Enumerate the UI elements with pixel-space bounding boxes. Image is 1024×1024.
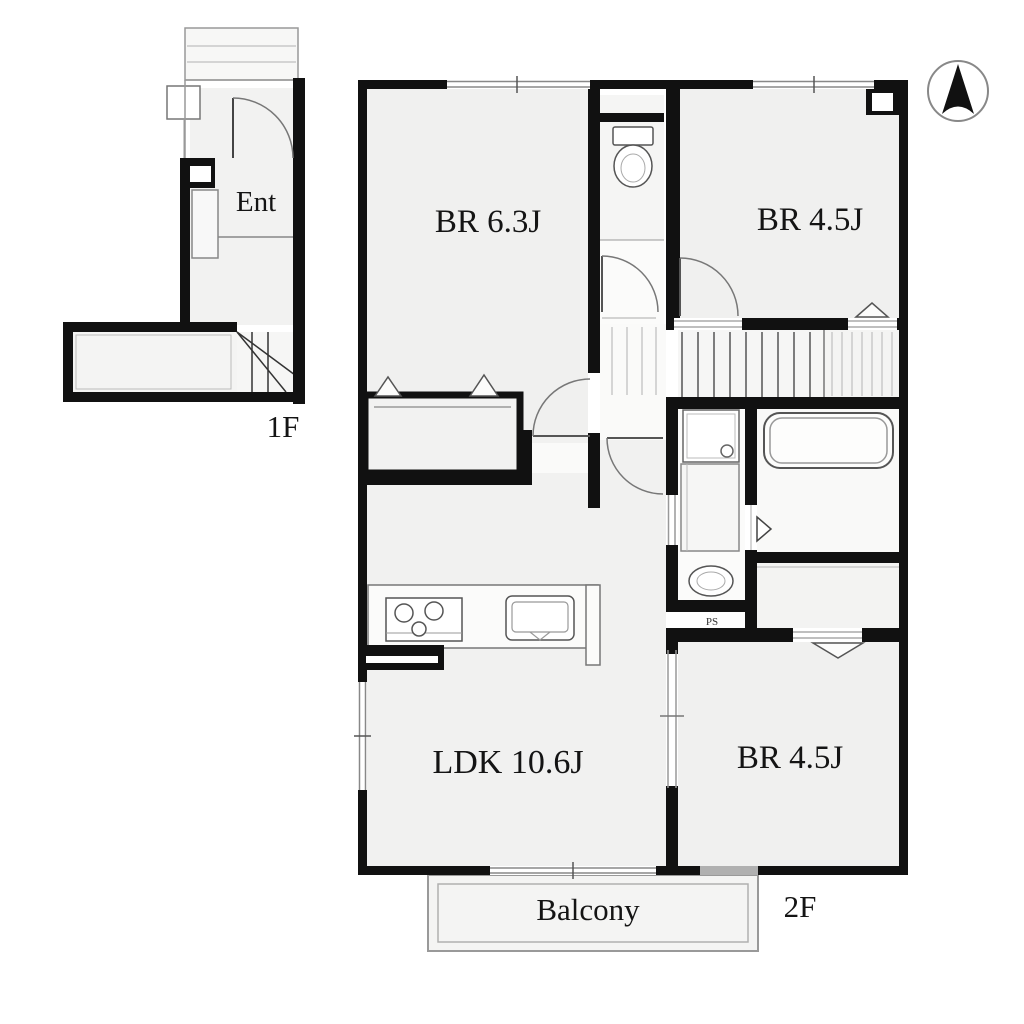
stairs-1f-floor <box>237 332 295 392</box>
sink-icon <box>506 596 574 640</box>
pipe-space-label: PS <box>706 616 718 628</box>
stove-icon <box>386 598 462 641</box>
north-arrow-icon <box>928 61 988 121</box>
vanity-counter <box>681 464 739 551</box>
ldk-label: LDK 10.6J <box>432 744 583 781</box>
bedroom-45-top-label: BR 4.5J <box>757 202 864 238</box>
stairs-2f-floor <box>678 330 824 397</box>
floor-plan: Ent 1F BR 6.3J BR 4.5J LDK 10.6J BR 4.5J… <box>0 0 1024 1024</box>
washbasin-icon <box>689 566 733 596</box>
bathtub-icon <box>764 413 893 468</box>
bedroom-45-bottom-label: BR 4.5J <box>737 740 844 776</box>
meter-box <box>167 86 200 119</box>
hall-upper <box>600 240 664 324</box>
washing-machine-pan-icon <box>683 410 739 462</box>
floor-plan-drawing: Ent 1F BR 6.3J BR 4.5J LDK 10.6J BR 4.5J… <box>0 0 1024 1024</box>
entrance-label: Ent <box>236 186 276 218</box>
porch <box>185 28 298 80</box>
bedroom-63-label: BR 6.3J <box>435 204 542 240</box>
shoe-cabinet <box>192 190 218 258</box>
floor-2f-label: 2F <box>784 889 817 924</box>
storage-closet <box>757 563 899 630</box>
balcony-label: Balcony <box>536 892 640 927</box>
toilet-bowl-icon <box>614 145 652 187</box>
floor-1f-label: 1F <box>267 409 300 444</box>
toilet-tank-icon <box>613 127 653 145</box>
ldk-nook <box>532 443 588 473</box>
window-br45-bottom <box>700 866 758 875</box>
